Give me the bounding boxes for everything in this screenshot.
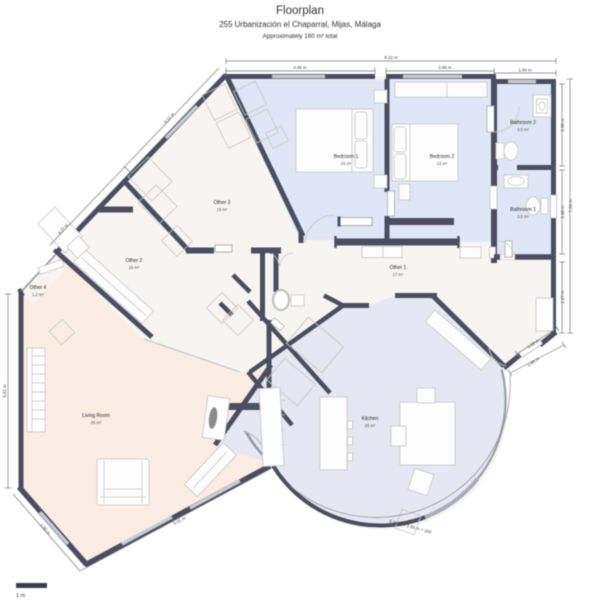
svg-text:13 m²: 13 m² [437, 161, 448, 166]
svg-text:Bedroom 2: Bedroom 2 [430, 154, 455, 160]
svg-text:2.27 m: 2.27 m [560, 290, 565, 304]
svg-text:3.0 m²: 3.0 m² [517, 127, 529, 132]
svg-text:Other 1: Other 1 [390, 265, 407, 271]
svg-text:2.98 m: 2.98 m [560, 118, 565, 132]
svg-text:25 m²: 25 m² [365, 423, 376, 428]
svg-text:Approximately 160 m² total: Approximately 160 m² total [263, 33, 338, 40]
svg-text:Other 4: Other 4 [30, 285, 47, 291]
svg-text:Living Room: Living Room [82, 413, 110, 419]
svg-text:4.45 m: 4.45 m [293, 65, 307, 70]
svg-text:5.81 m: 5.81 m [2, 384, 7, 398]
svg-text:Floorplan: Floorplan [276, 5, 324, 17]
svg-text:2.86 m: 2.86 m [438, 65, 452, 70]
svg-text:Kitchen: Kitchen [362, 416, 379, 422]
svg-text:Other 3: Other 3 [214, 200, 231, 206]
svg-text:15 m²: 15 m² [341, 161, 352, 166]
svg-text:8.22 m: 8.22 m [384, 55, 398, 60]
svg-text:Bedroom 1: Bedroom 1 [334, 154, 359, 160]
svg-text:35 m²: 35 m² [91, 420, 102, 425]
svg-text:3.6 m²: 3.6 m² [517, 214, 529, 219]
svg-text:17 m²: 17 m² [393, 272, 404, 277]
svg-text:255 Urbanización el Chaparral,: 255 Urbanización el Chaparral, Mijas, Má… [219, 20, 381, 29]
svg-text:15 m²: 15 m² [217, 207, 228, 212]
svg-text:2.40 m: 2.40 m [560, 205, 565, 219]
svg-text:1 m: 1 m [16, 593, 26, 599]
svg-text:Other 2: Other 2 [126, 258, 143, 264]
svg-text:1.2 m²: 1.2 m² [32, 292, 44, 297]
svg-text:Bathroom 1: Bathroom 1 [510, 207, 536, 213]
svg-text:7.24 m: 7.24 m [568, 199, 573, 213]
svg-text:1.84 m: 1.84 m [518, 68, 532, 73]
svg-text:15 m²: 15 m² [129, 265, 140, 270]
svg-text:Bathroom 2: Bathroom 2 [510, 120, 536, 126]
